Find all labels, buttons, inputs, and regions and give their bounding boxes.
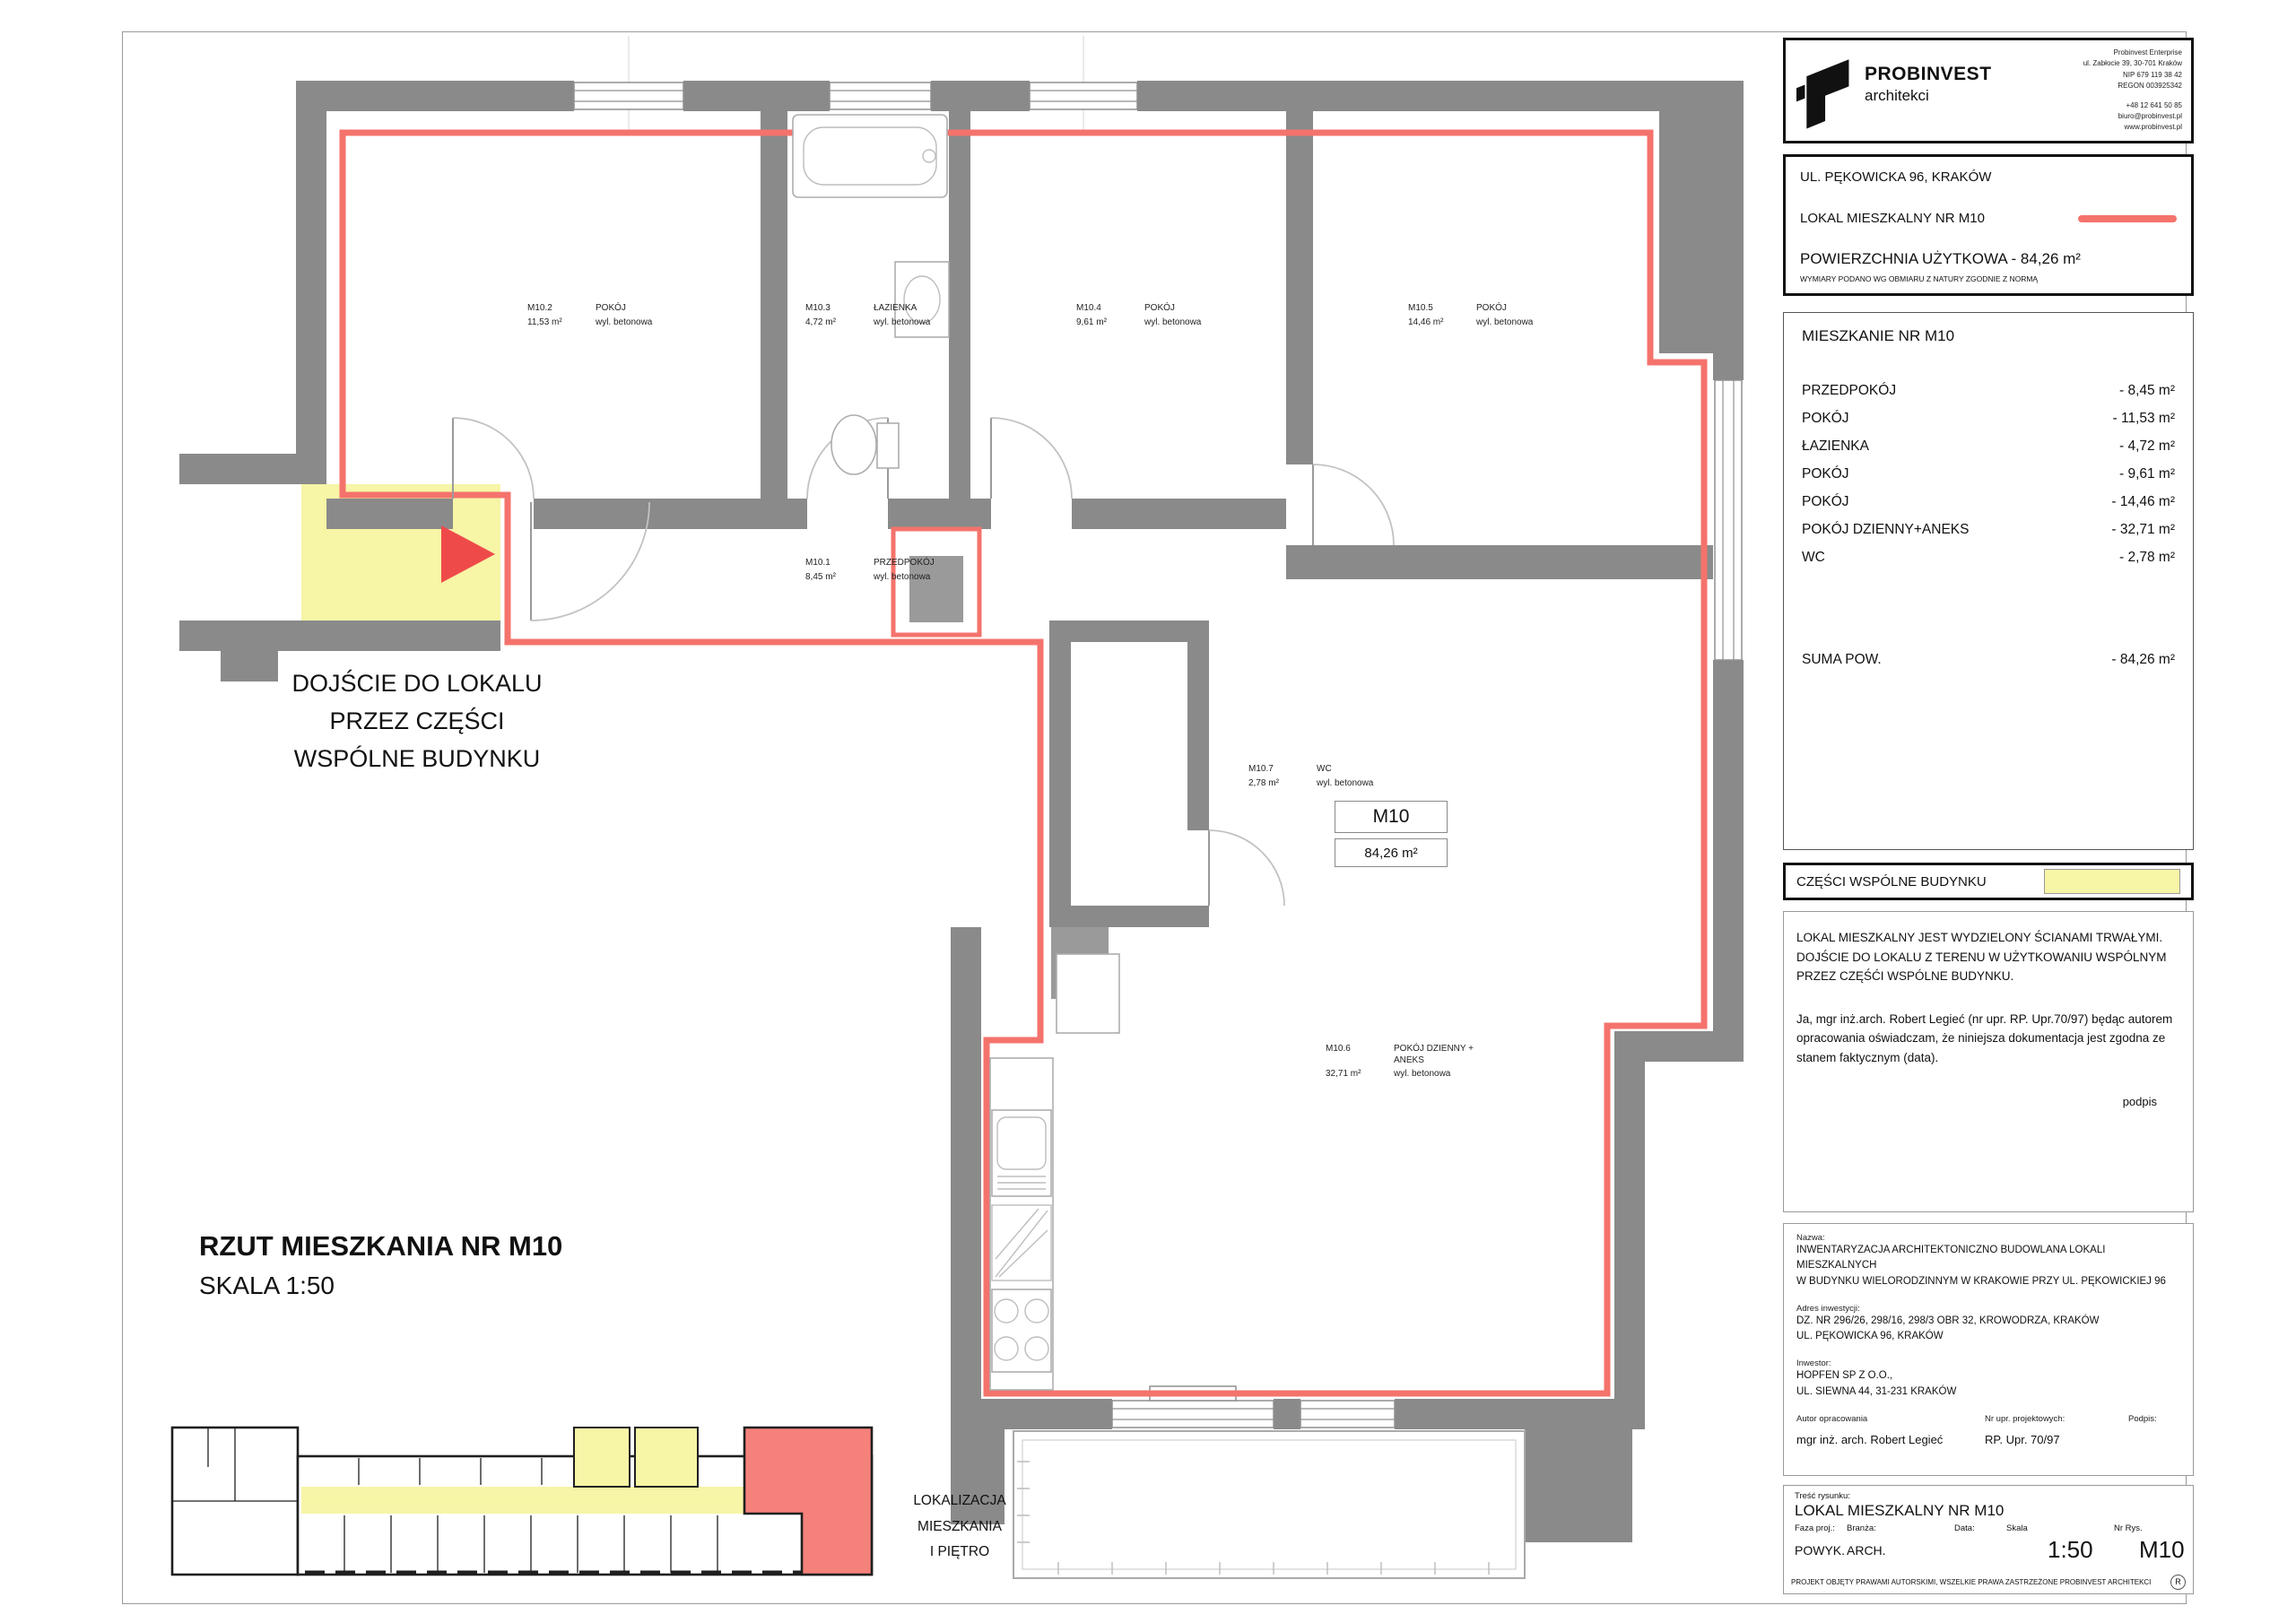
company-line: ul. Zabłocie 39, 30-701 Kraków — [2083, 58, 2182, 69]
room-area: 9,61 m² — [1076, 317, 1130, 329]
location-note-line: LOKALIZACJA — [879, 1488, 1040, 1515]
row-value: - 11,53 m² — [2113, 411, 2176, 427]
branch-label: Branża: — [1847, 1523, 1876, 1533]
windows — [574, 82, 1742, 1428]
podpis-label: Podpis: — [2128, 1414, 2180, 1424]
room-finish: wyl. betonowa — [1317, 778, 1373, 790]
room-name: POKÓJ — [1476, 303, 1533, 315]
row-value: - 9,61 m² — [2119, 466, 2175, 482]
room-finish: wyl. betonowa — [874, 572, 935, 584]
street-address: UL. PĘKOWICKA 96, KRAKÓW — [1800, 169, 1991, 185]
outline-legend-swatch — [2078, 215, 2177, 222]
room-id: M10.6 — [1326, 1044, 1379, 1066]
entry-note-line: WSPÓLNE BUDYNKU — [206, 741, 628, 778]
balcony — [1013, 1431, 1525, 1578]
company-site: www.probinvest.pl — [2083, 122, 2182, 133]
row-label: PRZEDPOKÓJ — [1802, 383, 1896, 399]
common-parts-label: CZĘŚCI WSPÓLNE BUDYNKU — [1796, 874, 1987, 890]
company-line: Probinvest Enterprise — [2083, 48, 2182, 58]
row-value: - 4,72 m² — [2119, 438, 2175, 455]
location-note-line: I PIĘTRO — [879, 1540, 1040, 1566]
usable-area: POWIERZCHNIA UŻYTKOWA - 84,26 m² — [1800, 250, 2081, 268]
project-name-line: W BUDYNKU WIELORODZINNYM W KRAKOWIE PRZY… — [1796, 1274, 2180, 1289]
row-label: POKÓJ — [1802, 466, 1849, 482]
invest-address-line: DZ. NR 296/26, 298/16, 298/3 OBR 32, KRO… — [1796, 1314, 2180, 1329]
room-id: M10.5 — [1408, 303, 1462, 315]
room-finish: wyl. betonowa — [1476, 317, 1533, 329]
invest-address-label: Adres inwestycji: — [1796, 1304, 2180, 1314]
probinvest-logo-icon — [1796, 53, 1856, 132]
company-email: biuro@probinvest.pl — [2083, 111, 2182, 122]
entry-note: DOJŚCIE DO LOKALU PRZEZ CZĘŚCI WSPÓLNE B… — [206, 665, 628, 778]
room-id: M10.7 — [1248, 764, 1302, 776]
room-finish: wyl. betonowa — [1144, 317, 1201, 329]
row-label: ŁAZIENKA — [1802, 438, 1869, 455]
license-number: RP. Upr. 70/97 — [1985, 1433, 2128, 1446]
license-label: Nr upr. projektowych: — [1985, 1414, 2128, 1424]
copyright-text: PROJEKT OBJĘTY PRAWAMI AUTORSKIMI, WSZEL… — [1791, 1578, 2151, 1586]
row-value: - 2,78 m² — [2119, 550, 2175, 566]
row-value: - 32,71 m² — [2111, 522, 2175, 538]
statement-line: LOKAL MIESZKALNY JEST WYDZIELONY ŚCIANAM… — [1796, 928, 2180, 948]
plan-title-line1: RZUT MIESZKANIA NR M10 — [199, 1230, 562, 1263]
room-id: M10.2 — [527, 303, 581, 315]
row-label: POKÓJ — [1802, 494, 1849, 510]
common-parts-legend: CZĘŚCI WSPÓLNE BUDYNKU — [1783, 863, 2194, 900]
room-id: M10.3 — [805, 303, 859, 315]
investor-label: Inwestor: — [1796, 1358, 2180, 1368]
branch-value: ARCH. — [1847, 1543, 1886, 1558]
header-box: UL. PĘKOWICKA 96, KRAKÓW LOKAL MIESZKALN… — [1783, 154, 2194, 296]
room-table: MIESZKANIE NR M10 PRZEDPOKÓJ - 8,45 m² P… — [1783, 312, 2194, 850]
room-finish: wyl. betonowa — [874, 317, 930, 329]
project-name-line: INWENTARYZACJA ARCHITEKTONICZNO BUDOWLAN… — [1796, 1243, 2180, 1274]
room-area: 11,53 m² — [527, 317, 581, 329]
company-line: NIP 679 119 38 42 — [2083, 70, 2182, 81]
total-label: SUMA POW. — [1802, 652, 1882, 668]
room-name: PRZEDPOKÓJ — [874, 558, 935, 569]
room-finish: wyl. betonowa — [1394, 1069, 1500, 1081]
brand-sub: architekci — [1865, 87, 1992, 105]
unit-area-tag: 84,26 m² — [1335, 838, 1448, 867]
room-table-title: MIESZKANIE NR M10 — [1802, 327, 2175, 345]
investor-line: HOPFEN SP Z O.O., — [1796, 1368, 2180, 1384]
company-info: Probinvest Enterprise ul. Zabłocie 39, 3… — [2083, 40, 2191, 141]
room-id: M10.1 — [805, 558, 859, 569]
plan-title-line2: SKALA 1:50 — [199, 1271, 562, 1300]
kitchen-fixtures — [990, 954, 1119, 1390]
room-area: 4,72 m² — [805, 317, 859, 329]
phase-label: Faza proj.: — [1795, 1523, 1835, 1533]
table-total-row: SUMA POW. - 84,26 m² — [1802, 652, 2175, 668]
statement-box: LOKAL MIESZKALNY JEST WYDZIELONY ŚCIANAM… — [1783, 911, 2194, 1212]
date-label: Data: — [1954, 1523, 1975, 1533]
room-name: POKÓJ — [596, 303, 652, 315]
table-row: PRZEDPOKÓJ - 8,45 m² — [1802, 383, 2175, 399]
room-label-m10-1: M10.1 PRZEDPOKÓJ 8,45 m² wyl. betonowa — [805, 558, 935, 583]
room-label-m10-2: M10.2 POKÓJ 11,53 m² wyl. betonowa — [527, 303, 652, 328]
title-block: Treść rysunku: LOKAL MIESZKALNY NR M10 F… — [1783, 1485, 2194, 1594]
scale-label: Skala — [2006, 1523, 2028, 1533]
row-value: - 14,46 m² — [2111, 494, 2175, 510]
author-declaration: Ja, mgr inż.arch. Robert Legieć (nr upr.… — [1796, 1010, 2180, 1068]
nr-value: M10 — [2139, 1536, 2185, 1564]
scale-value: 1:50 — [2048, 1536, 2093, 1564]
table-row: POKÓJ - 11,53 m² — [1802, 411, 2175, 427]
room-label-m10-3: M10.3 ŁAZIENKA 4,72 m² wyl. betonowa — [805, 303, 930, 328]
room-area: 8,45 m² — [805, 572, 859, 584]
room-name: WC — [1317, 764, 1373, 776]
unit-label: LOKAL MIESZKALNY NR M10 — [1800, 211, 1985, 226]
table-row: POKÓJ - 9,61 m² — [1802, 466, 2175, 482]
entry-note-line: DOJŚCIE DO LOKALU — [206, 665, 628, 703]
location-note: LOKALIZACJA MIESZKANIA I PIĘTRO — [879, 1488, 1040, 1566]
room-label-m10-6: M10.6 POKÓJ DZIENNY + ANEKS 32,71 m² wyl… — [1326, 1044, 1500, 1081]
plan-title: RZUT MIESZKANIA NR M10 SKALA 1:50 — [199, 1230, 562, 1300]
room-area: 2,78 m² — [1248, 778, 1302, 790]
statement-line: DOJŚCIE DO LOKALU Z TERENU W UŻYTKOWANIU… — [1796, 948, 2180, 968]
author-name: mgr inż. arch. Robert Legieć — [1796, 1433, 1985, 1446]
room-name: POKÓJ — [1144, 303, 1201, 315]
investor-line: UL. SIEWNA 44, 31-231 KRAKÓW — [1796, 1384, 2180, 1400]
row-label: POKÓJ — [1802, 411, 1849, 427]
row-label: POKÓJ DZIENNY+ANEKS — [1802, 522, 1969, 538]
drawing-content: LOKAL MIESZKALNY NR M10 — [1795, 1502, 2182, 1520]
room-name: ŁAZIENKA — [874, 303, 930, 315]
table-row: POKÓJ - 14,46 m² — [1802, 494, 2175, 510]
signature-label: podpis — [1796, 1095, 2180, 1108]
registered-mark: R — [2170, 1575, 2186, 1590]
building-location-plan — [172, 1428, 872, 1575]
room-finish: wyl. betonowa — [596, 317, 652, 329]
company-phone: +48 12 641 50 85 — [2083, 100, 2182, 111]
name-label: Nazwa: — [1796, 1233, 2180, 1243]
row-value: - 8,45 m² — [2119, 383, 2175, 399]
logo-block: PROBINVEST architekci Probinvest Enterpr… — [1783, 38, 2194, 143]
room-id: M10.4 — [1076, 303, 1130, 315]
room-name: POKÓJ DZIENNY + ANEKS — [1394, 1044, 1500, 1066]
phase-value: POWYK. — [1795, 1543, 1845, 1558]
author-label: Autor opracowania — [1796, 1414, 1985, 1424]
invest-address-line: UL. PĘKOWICKA 96, KRAKÓW — [1796, 1329, 2180, 1344]
room-label-m10-7: M10.7 WC 2,78 m² wyl. betonowa — [1248, 764, 1373, 789]
table-row: ŁAZIENKA - 4,72 m² — [1802, 438, 2175, 455]
total-value: - 84,26 m² — [2111, 652, 2175, 668]
project-info-box: Nazwa: INWENTARYZACJA ARCHITEKTONICZNO B… — [1783, 1223, 2194, 1476]
area-note: WYMIARY PODANO WG OBMIARU Z NATURY ZGODN… — [1800, 274, 2038, 283]
location-note-line: MIESZKANIA — [879, 1515, 1040, 1541]
doors — [453, 418, 1394, 906]
room-label-m10-4: M10.4 POKÓJ 9,61 m² wyl. betonowa — [1076, 303, 1201, 328]
room-area: 32,71 m² — [1326, 1069, 1379, 1081]
walls — [179, 81, 1744, 1542]
statement-line: PRZEZ CZĘŚĆI WSPÓLNE BUDYNKU. — [1796, 967, 2180, 986]
room-area: 14,46 m² — [1408, 317, 1462, 329]
unit-tag: M10 — [1335, 801, 1448, 833]
common-parts-swatch — [2044, 869, 2180, 894]
brand-name: PROBINVEST — [1865, 64, 1992, 85]
table-row: WC - 2,78 m² — [1802, 550, 2175, 566]
row-label: WC — [1802, 550, 1825, 566]
entry-note-line: PRZEZ CZĘŚCI — [206, 703, 628, 741]
drawing-content-label: Treść rysunku: — [1795, 1491, 2182, 1501]
table-row: POKÓJ DZIENNY+ANEKS - 32,71 m² — [1802, 522, 2175, 538]
brand: PROBINVEST architekci — [1865, 64, 1992, 141]
company-line: REGON 003925342 — [2083, 81, 2182, 91]
room-label-m10-5: M10.5 POKÓJ 14,46 m² wyl. betonowa — [1408, 303, 1533, 328]
nr-label: Nr Rys. — [2114, 1523, 2143, 1533]
